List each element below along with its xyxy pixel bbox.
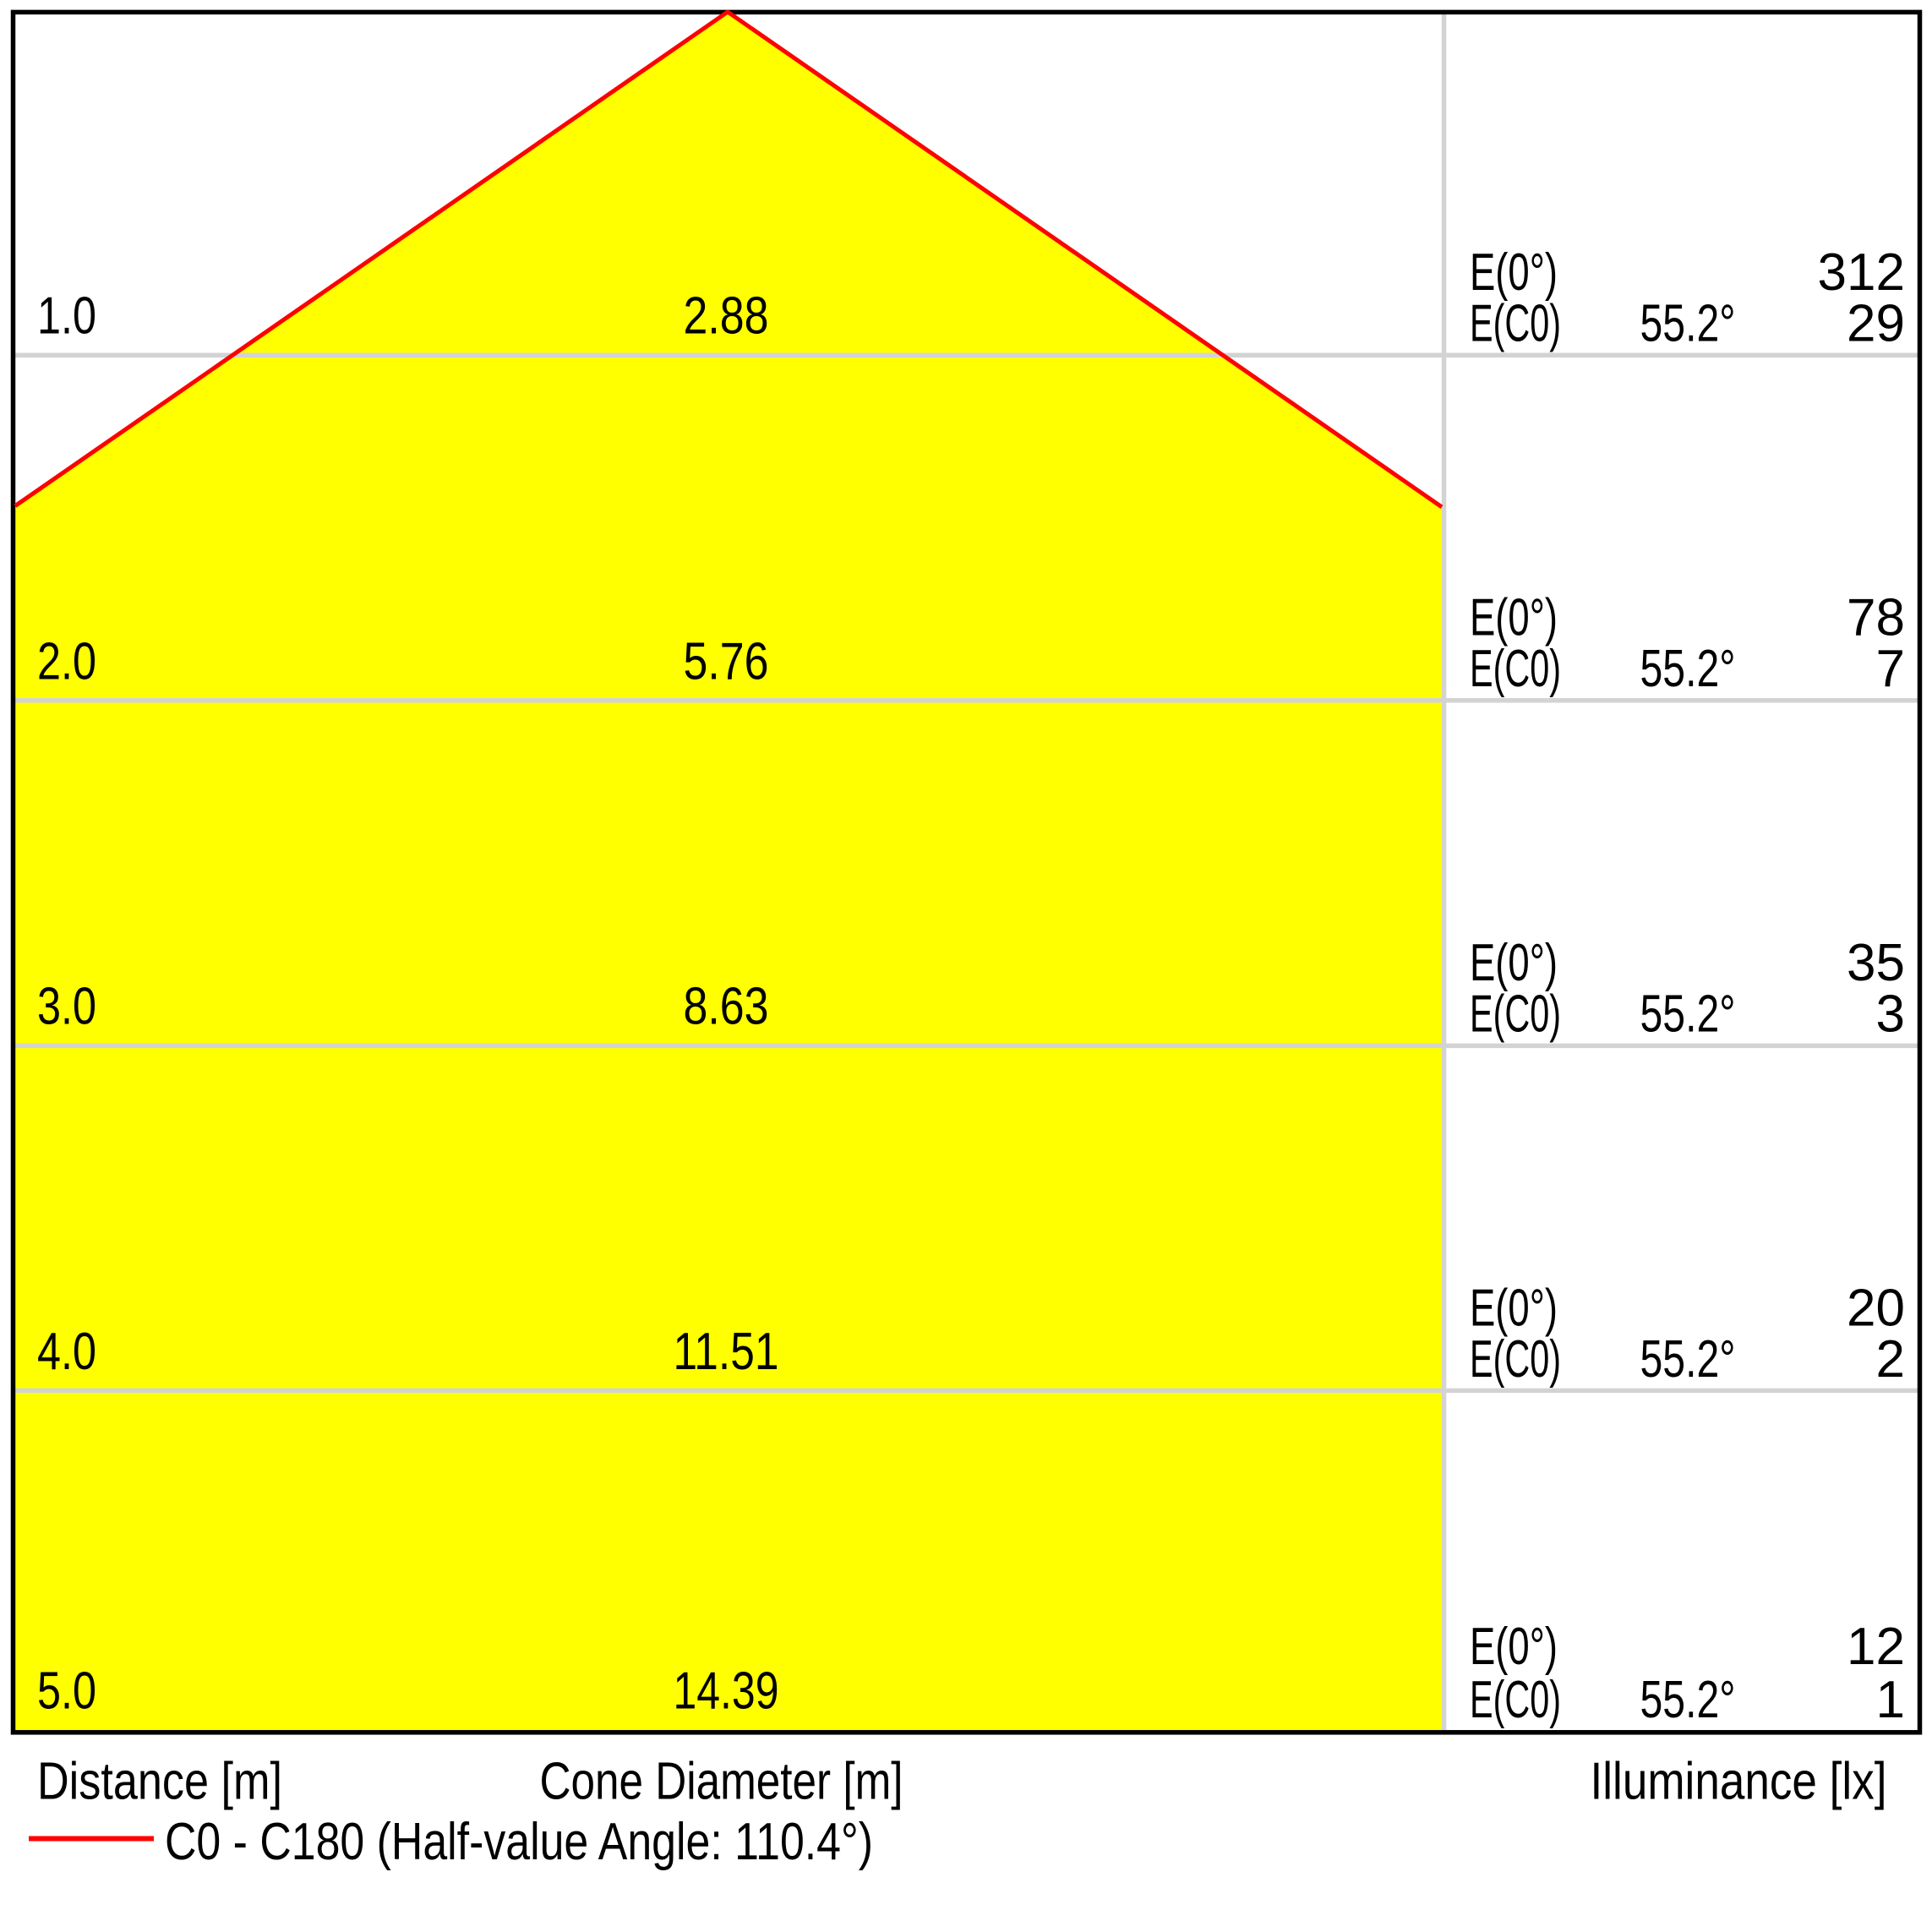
- svg-text:2.0: 2.0: [37, 633, 96, 691]
- svg-text:12: 12: [1847, 1618, 1905, 1676]
- svg-text:2.88: 2.88: [684, 287, 769, 346]
- svg-text:55.2°: 55.2°: [1640, 294, 1736, 352]
- svg-text:2: 2: [1876, 1330, 1905, 1389]
- svg-text:55.2°: 55.2°: [1640, 1671, 1736, 1729]
- svg-text:312: 312: [1818, 243, 1905, 302]
- svg-text:11.51: 11.51: [674, 1323, 779, 1381]
- svg-text:14.39: 14.39: [674, 1662, 779, 1721]
- svg-text:29: 29: [1847, 294, 1905, 352]
- svg-text:E(C0): E(C0): [1470, 1330, 1561, 1389]
- svg-text:55.2°: 55.2°: [1640, 985, 1736, 1044]
- svg-text:7: 7: [1876, 640, 1905, 698]
- svg-text:1.0: 1.0: [37, 287, 96, 346]
- svg-text:Distance [m]: Distance [m]: [37, 1753, 282, 1811]
- svg-text:3.0: 3.0: [37, 977, 96, 1035]
- svg-text:E(0°): E(0°): [1470, 588, 1558, 647]
- svg-text:E(C0): E(C0): [1470, 640, 1561, 698]
- svg-text:78: 78: [1847, 588, 1905, 647]
- svg-text:8.63: 8.63: [684, 977, 769, 1035]
- svg-text:1: 1: [1876, 1671, 1905, 1729]
- svg-text:E(C0): E(C0): [1470, 294, 1561, 352]
- svg-text:55.2°: 55.2°: [1640, 1330, 1736, 1389]
- svg-text:3: 3: [1876, 985, 1905, 1044]
- svg-text:C0 - C180 (Half-value Angle: 1: C0 - C180 (Half-value Angle: 110.4°): [165, 1813, 873, 1871]
- svg-text:E(0°): E(0°): [1470, 1279, 1558, 1337]
- svg-text:Illuminance [lx]: Illuminance [lx]: [1591, 1753, 1887, 1811]
- svg-text:55.2°: 55.2°: [1640, 640, 1736, 698]
- svg-text:E(C0): E(C0): [1470, 985, 1561, 1044]
- svg-text:4.0: 4.0: [37, 1323, 96, 1381]
- svg-text:E(C0): E(C0): [1470, 1671, 1561, 1729]
- svg-text:E(0°): E(0°): [1470, 934, 1558, 992]
- svg-text:Cone Diameter [m]: Cone Diameter [m]: [540, 1753, 903, 1811]
- svg-text:35: 35: [1847, 934, 1905, 992]
- svg-text:E(0°): E(0°): [1470, 243, 1558, 302]
- svg-text:5.0: 5.0: [37, 1662, 96, 1721]
- svg-text:20: 20: [1847, 1279, 1905, 1337]
- svg-text:5.76: 5.76: [684, 633, 769, 691]
- svg-text:E(0°): E(0°): [1470, 1618, 1558, 1676]
